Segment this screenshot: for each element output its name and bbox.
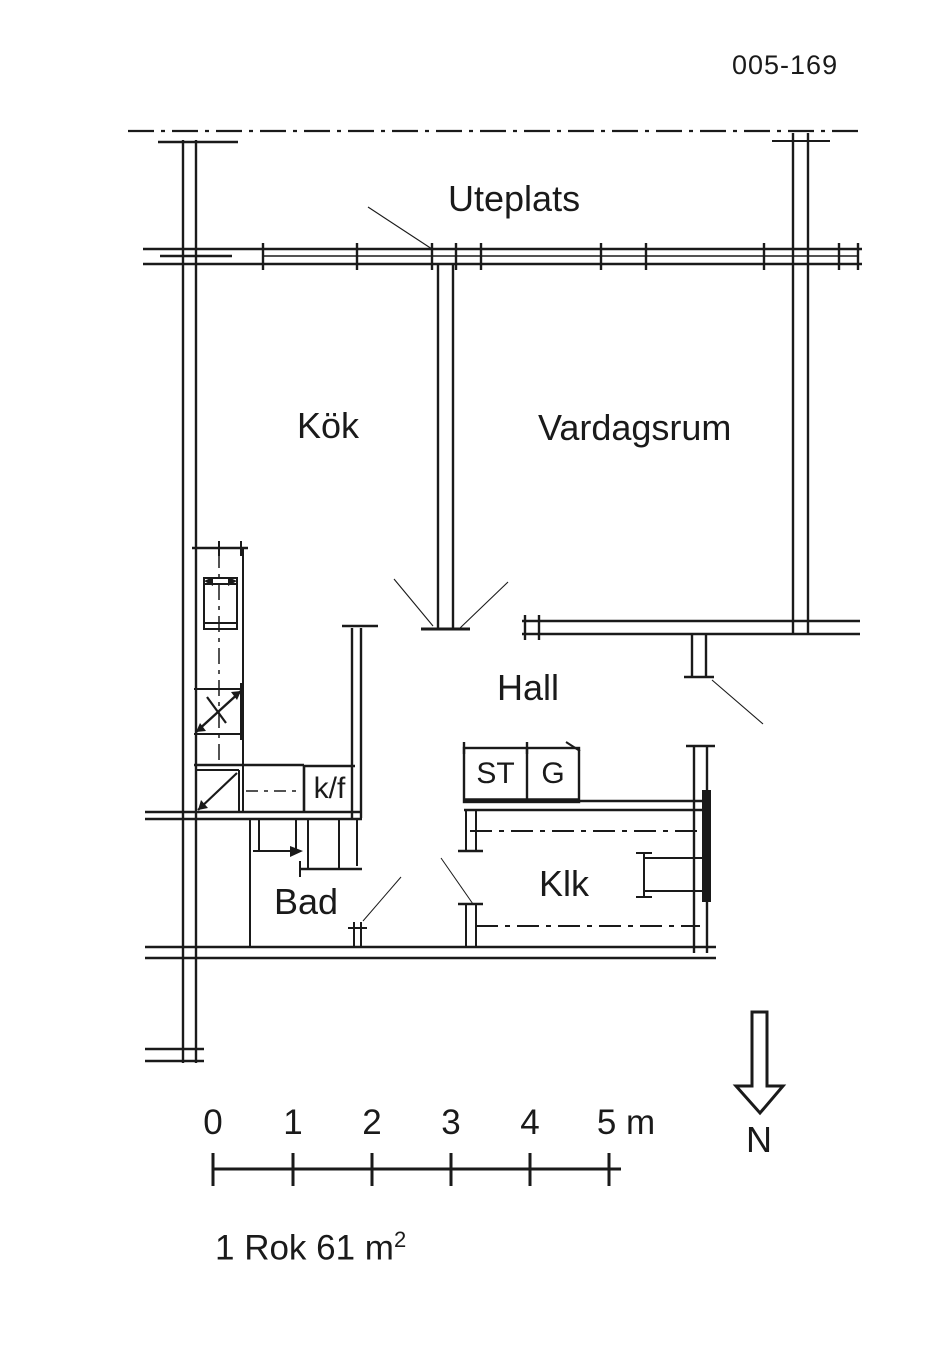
label-klk: Klk [539,866,589,902]
apartment-caption: 1 Rok 61 m2 [215,1229,406,1266]
scale-label-4: 4 [485,1105,575,1140]
label-vardagsrum: Vardagsrum [538,410,731,446]
caption-superscript: 2 [394,1227,406,1252]
north-arrow-icon [736,1012,783,1113]
scale-label-3: 3 [406,1105,496,1140]
label-g: G [527,759,579,789]
caption-text: 1 Rok 61 m [215,1229,394,1268]
scale-label-5m: 5 m [581,1105,671,1140]
label-st: ST [464,759,527,789]
drawing-number: 005-169 [732,52,838,79]
label-uteplats: Uteplats [448,181,580,217]
north-label: N [746,1122,772,1158]
walls [143,133,862,1063]
label-kf: k/f [304,774,355,804]
floor-plan-page: 005-169 Uteplats Kök Vardagsrum Hall k/f… [0,0,925,1350]
label-bad: Bad [274,884,338,920]
scale-label-2: 2 [327,1105,417,1140]
label-kok: Kök [297,408,359,444]
scale-label-0: 0 [168,1105,258,1140]
label-hall: Hall [497,670,559,706]
leader-lines [368,207,763,724]
klk-wall-fill [702,790,711,902]
scale-label-1: 1 [248,1105,338,1140]
scale-bar [213,1153,621,1186]
